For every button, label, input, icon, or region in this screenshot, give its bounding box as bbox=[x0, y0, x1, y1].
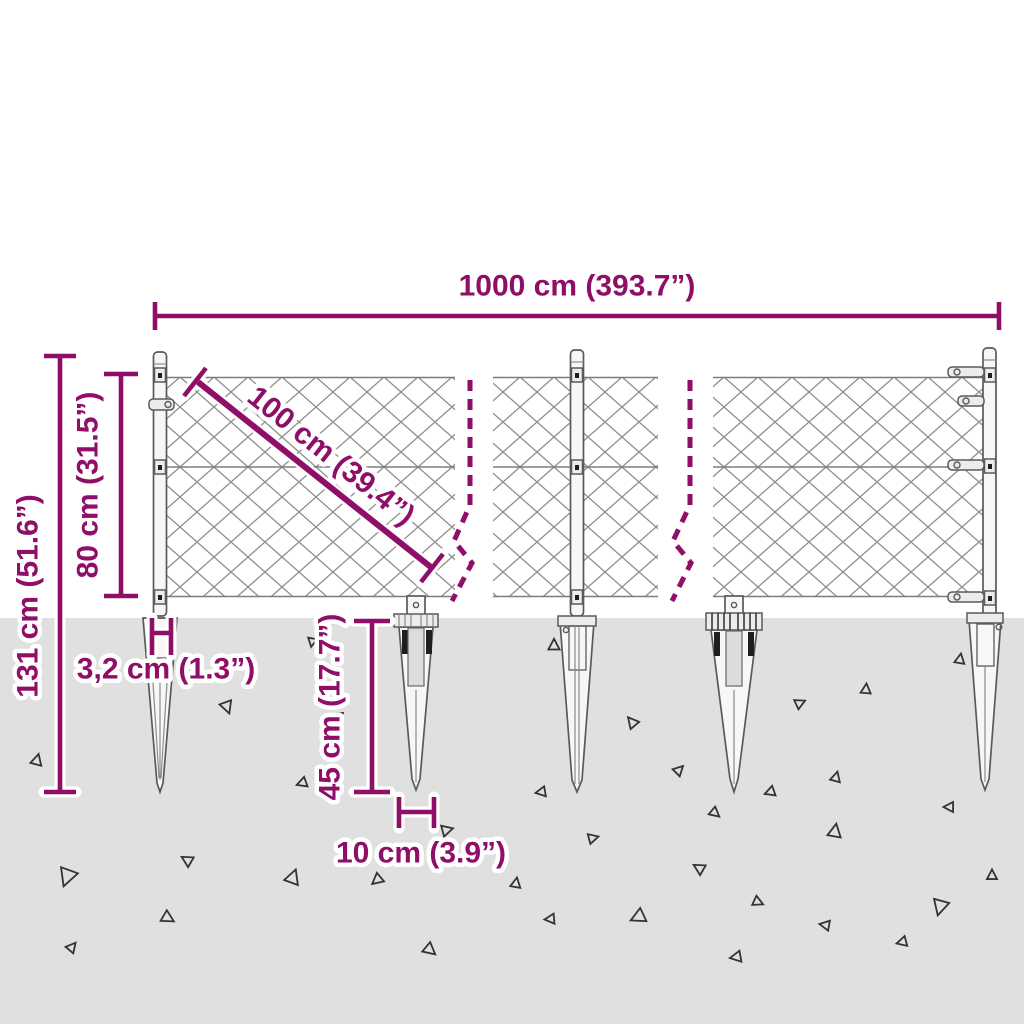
label-total-width: 1000 cm (393.7”) bbox=[459, 270, 696, 303]
label-spike-length: 45 cm (17.7”) bbox=[314, 614, 347, 801]
mesh-panel-left bbox=[163, 377, 455, 597]
fence-dimension-diagram: 1000 cm (393.7”) 100 cm (39.4”) 80 cm (3… bbox=[0, 0, 1024, 1024]
post-middle bbox=[571, 350, 584, 616]
break-line-right bbox=[672, 380, 691, 601]
dim-mesh-height-line bbox=[104, 374, 138, 596]
label-spike-diameter: 3,2 cm (1.3”) bbox=[77, 653, 255, 686]
label-total-height: 131 cm (51.6”) bbox=[12, 494, 45, 697]
mesh-panel-right bbox=[713, 377, 986, 597]
label-mesh-height: 80 cm (31.5”) bbox=[72, 392, 105, 579]
diagram-canvas: 1000 cm (393.7”) 100 cm (39.4”) 80 cm (3… bbox=[0, 0, 1024, 1024]
label-spike-spacing: 10 cm (3.9”) bbox=[336, 837, 506, 870]
dim-total-width-line bbox=[155, 302, 999, 330]
